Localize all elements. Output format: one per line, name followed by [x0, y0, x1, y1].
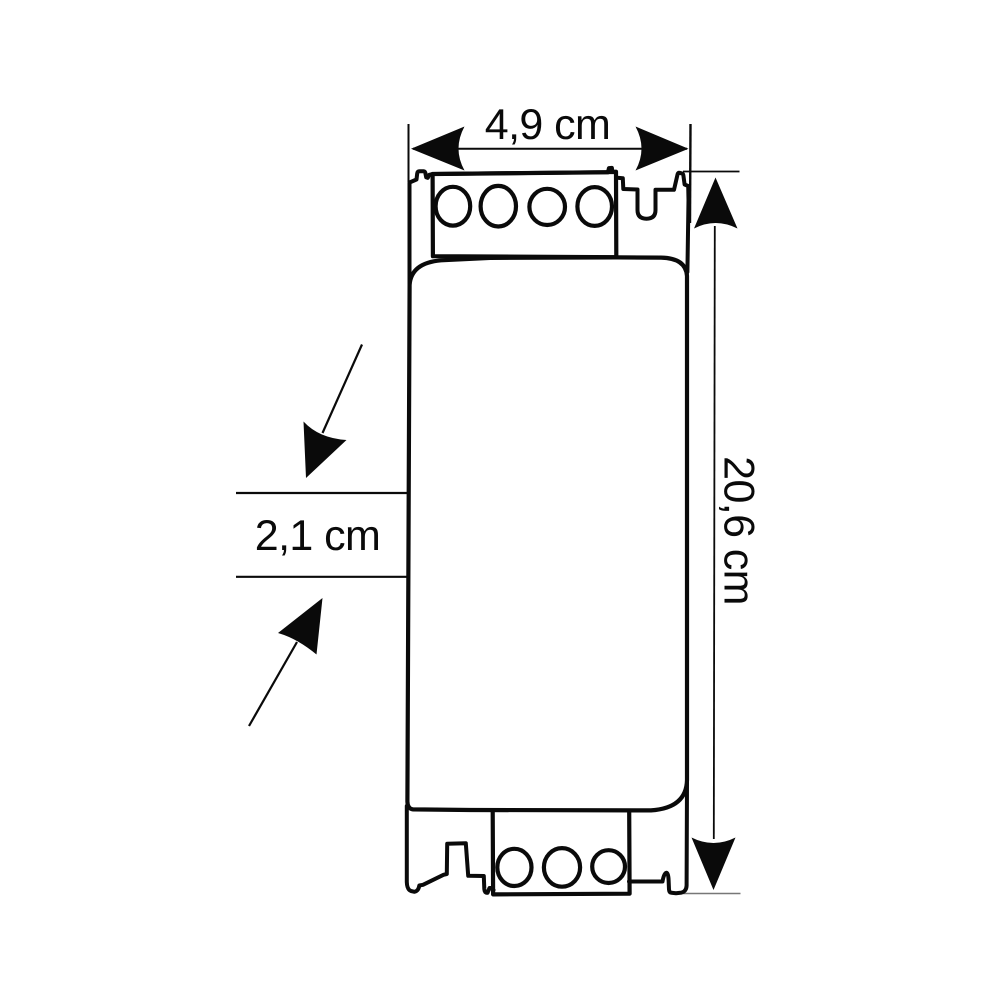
svg-text:4,9 cm: 4,9 cm [485, 101, 610, 149]
svg-text:20,6 cm: 20,6 cm [715, 456, 763, 605]
svg-text:2,1 cm: 2,1 cm [255, 512, 380, 560]
